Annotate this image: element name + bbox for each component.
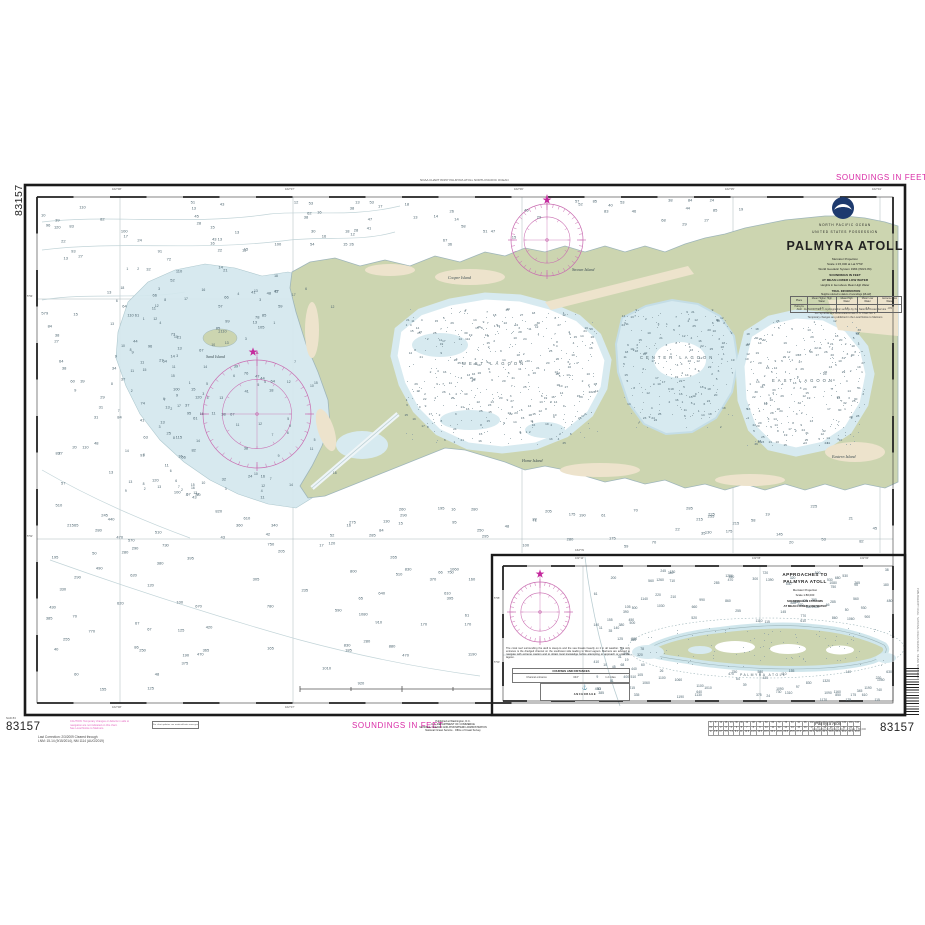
- inset-lon-outer: 162°W: [575, 549, 584, 552]
- title-soundings1: SOUNDINGS IN FEET: [780, 274, 910, 277]
- inset-note-line: extreme caution and to obtain local know…: [523, 653, 587, 656]
- inset-title-2: PALMYRA ATOLL: [755, 579, 855, 584]
- title-possession: UNITED STATES POSSESSION: [780, 231, 910, 235]
- inset-soundings-1: SOUNDINGS IN FATHOMS: [755, 600, 855, 603]
- inset-lon-1: 162°10': [575, 558, 584, 561]
- lon-label-top-4: 162°05': [725, 188, 734, 191]
- chart-title: PALMYRA ATOLL: [775, 240, 915, 254]
- print-note-right-edge: PUBLISHED BY NOAA · NATIONAL OCEAN SERVI…: [915, 588, 918, 679]
- scale-bar: [300, 686, 505, 692]
- lon-label-bottom-1: 162°08': [112, 706, 121, 709]
- publisher-line-4: National Ocean Service · Office of Coast…: [408, 729, 498, 732]
- tidal-col-mlw: Mean Low Water: [857, 297, 878, 305]
- title-soundings2: AT MEAN LOWER LOW WATER: [780, 279, 910, 282]
- footer-inset-ref-sub: Approaches to Palmyra Atoll — Scale 1:80…: [812, 729, 866, 732]
- inset-table-cell: 044°: [573, 674, 578, 681]
- inset-lon-2: 162°05': [752, 558, 761, 561]
- chart-number-bottom-left: 83157: [6, 721, 40, 734]
- inset-table-cell: 1.2 miles: [605, 674, 615, 681]
- lon-label-bottom-2: 162°07': [285, 706, 294, 709]
- top-margin-note: NOAA CHART 83157 PALMYRA ATOLL NORTH PAC…: [420, 179, 509, 182]
- label-eastern-island: Eastern Island: [832, 455, 855, 459]
- anchor-icon: ⚓: [541, 684, 629, 693]
- chart-number-bottom-right: 83157: [880, 722, 914, 735]
- noaa-logo: [830, 195, 856, 221]
- tidal-col-place: Place: [791, 297, 808, 305]
- title-region: NORTH PACIFIC OCEAN: [780, 224, 910, 228]
- publisher-block: Published at Washington, D.C. U.S. DEPAR…: [408, 720, 498, 732]
- footer-update-box: For chart updates see nauticalcharts.noa…: [152, 721, 199, 730]
- lat-label-left-1: 5°54': [27, 296, 33, 299]
- label-center-lagoon: CENTER LAGOON: [640, 356, 715, 361]
- inset-table-cell: Channel entrance: [526, 674, 546, 681]
- tidal-col-elw: Extreme Low Water: [878, 297, 902, 305]
- inset-projection: Mercator Projection: [755, 589, 855, 592]
- title-datum: World Geodetic System 1984 (WGS 84): [780, 268, 910, 271]
- label-sand-island: Sand Island: [206, 355, 225, 359]
- inset-lon-3: 162°00': [860, 558, 869, 561]
- lon-label-top-1: 162°08': [112, 188, 121, 191]
- lon-label-top-3: 162°06': [514, 188, 523, 191]
- tidal-col-mhw: Mean High Water: [836, 297, 857, 305]
- lon-label-top-2: 162°07': [285, 188, 294, 191]
- inset-anchorage-box: ⚓ ANCHORAGE: [540, 683, 630, 701]
- inset-title-1: APPROACHES TO: [755, 572, 855, 577]
- footer-caution-3: See Local Notice to Mariners.: [70, 728, 104, 731]
- inset-soundings-2: AT MEAN LOWER LOW WATER: [755, 605, 855, 608]
- inset-lat-1: 5°55': [494, 598, 500, 601]
- footer-nad-note: NAD 83: [6, 717, 16, 720]
- footer-inset-ref-title: Palmyra Atoll: [815, 722, 841, 727]
- label-strawn-island: Strawn Island: [572, 268, 594, 272]
- lat-label-left-2: 5°52': [27, 536, 33, 539]
- label-west-lagoon: WEST LAGOON: [462, 362, 526, 367]
- label-cooper-island: Cooper Island: [448, 276, 471, 280]
- inset-lat-2: 5°50': [494, 662, 500, 665]
- print-code-block: [906, 668, 919, 715]
- title-auth3: Temporary changes are published in the L…: [770, 317, 920, 320]
- title-heights: Heights in feet above Mean High Water: [780, 284, 910, 287]
- inset-courses-table: COURSES AND DISTANCES Channel entrance 0…: [512, 668, 630, 683]
- title-projection: Mercator Projection: [780, 258, 910, 261]
- inset-anchorage-label: ANCHORAGE: [541, 693, 629, 696]
- inset-scale: Scale 1:80,000: [755, 594, 855, 597]
- nautical-chart-sheet: 6456649674276160916682175716389627134543…: [0, 0, 925, 925]
- label-home-island: Home Island: [522, 459, 543, 463]
- inset-note-paragraph: The coral reef surrounding the atoll is …: [506, 647, 630, 659]
- lon-label-top-5: 162°04': [872, 188, 881, 191]
- title-scale: Scale 1:15,000 at Lat 5°53': [780, 263, 910, 266]
- inset-atoll-label: PALMYRA ATOLL: [740, 674, 786, 678]
- label-east-lagoon: EAST LAGOON: [772, 379, 835, 384]
- chart-number-left-edge: 83157: [14, 184, 26, 216]
- sand-islet: [203, 329, 237, 347]
- tidal-col-mhhw: Mean Higher High Water: [808, 297, 836, 305]
- soundings-unit-top: SOUNDINGS IN FEET: [836, 174, 925, 183]
- chart-graphic: [0, 0, 925, 925]
- footer-correction-2: LNM: 15-14 (9/15/2014), NM 1114 (AUG/201…: [38, 740, 104, 744]
